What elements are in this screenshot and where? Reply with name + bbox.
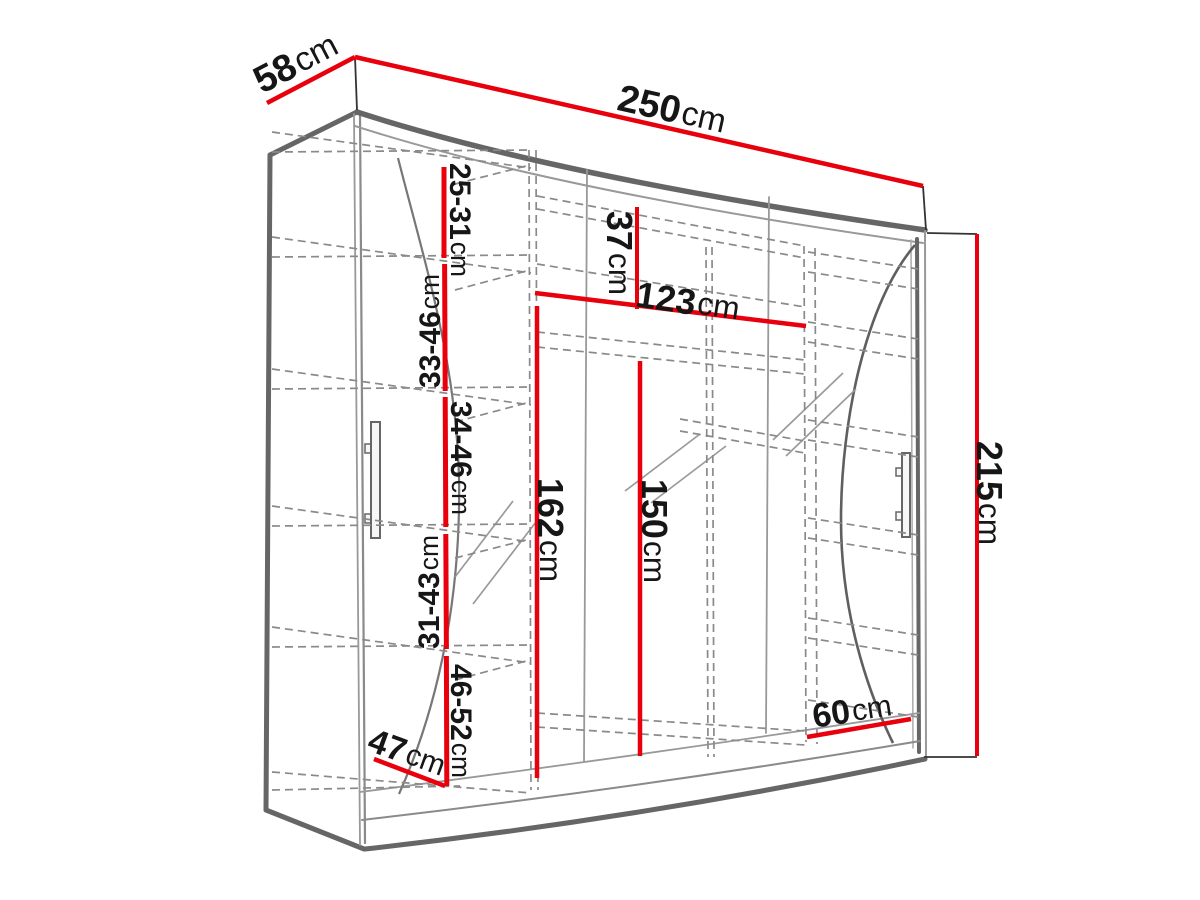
hanging-right-label: 150cm xyxy=(635,479,676,583)
hanging-left-label: 162cm xyxy=(531,478,572,582)
shelf-spacing-3-label: 34-46cm xyxy=(445,401,478,515)
shelf-spacing-1-label: 25-31cm xyxy=(444,163,477,277)
right-inner-edge xyxy=(917,239,919,752)
shelf-spacing-4-label: 31-43cm xyxy=(413,535,446,649)
shelf-spacing-5-label: 46-52cm xyxy=(445,664,478,778)
top-compartment-label: 37cm xyxy=(600,211,641,295)
background xyxy=(0,0,1200,900)
height-label: 215cm xyxy=(970,441,1011,545)
wardrobe-dimension-diagram: 58cm 250cm 215cm 37cm 123cm 162cm 150cm … xyxy=(0,0,1200,900)
dimension-line-shelf-4 xyxy=(446,534,447,649)
shelf-spacing-2-label: 33-46cm xyxy=(414,274,447,388)
right-outer-edge xyxy=(925,231,926,759)
diagram-canvas: 58cm 250cm 215cm 37cm 123cm 162cm 150cm … xyxy=(0,0,1200,900)
right-door-handle xyxy=(902,453,910,537)
extension-line xyxy=(927,233,977,234)
